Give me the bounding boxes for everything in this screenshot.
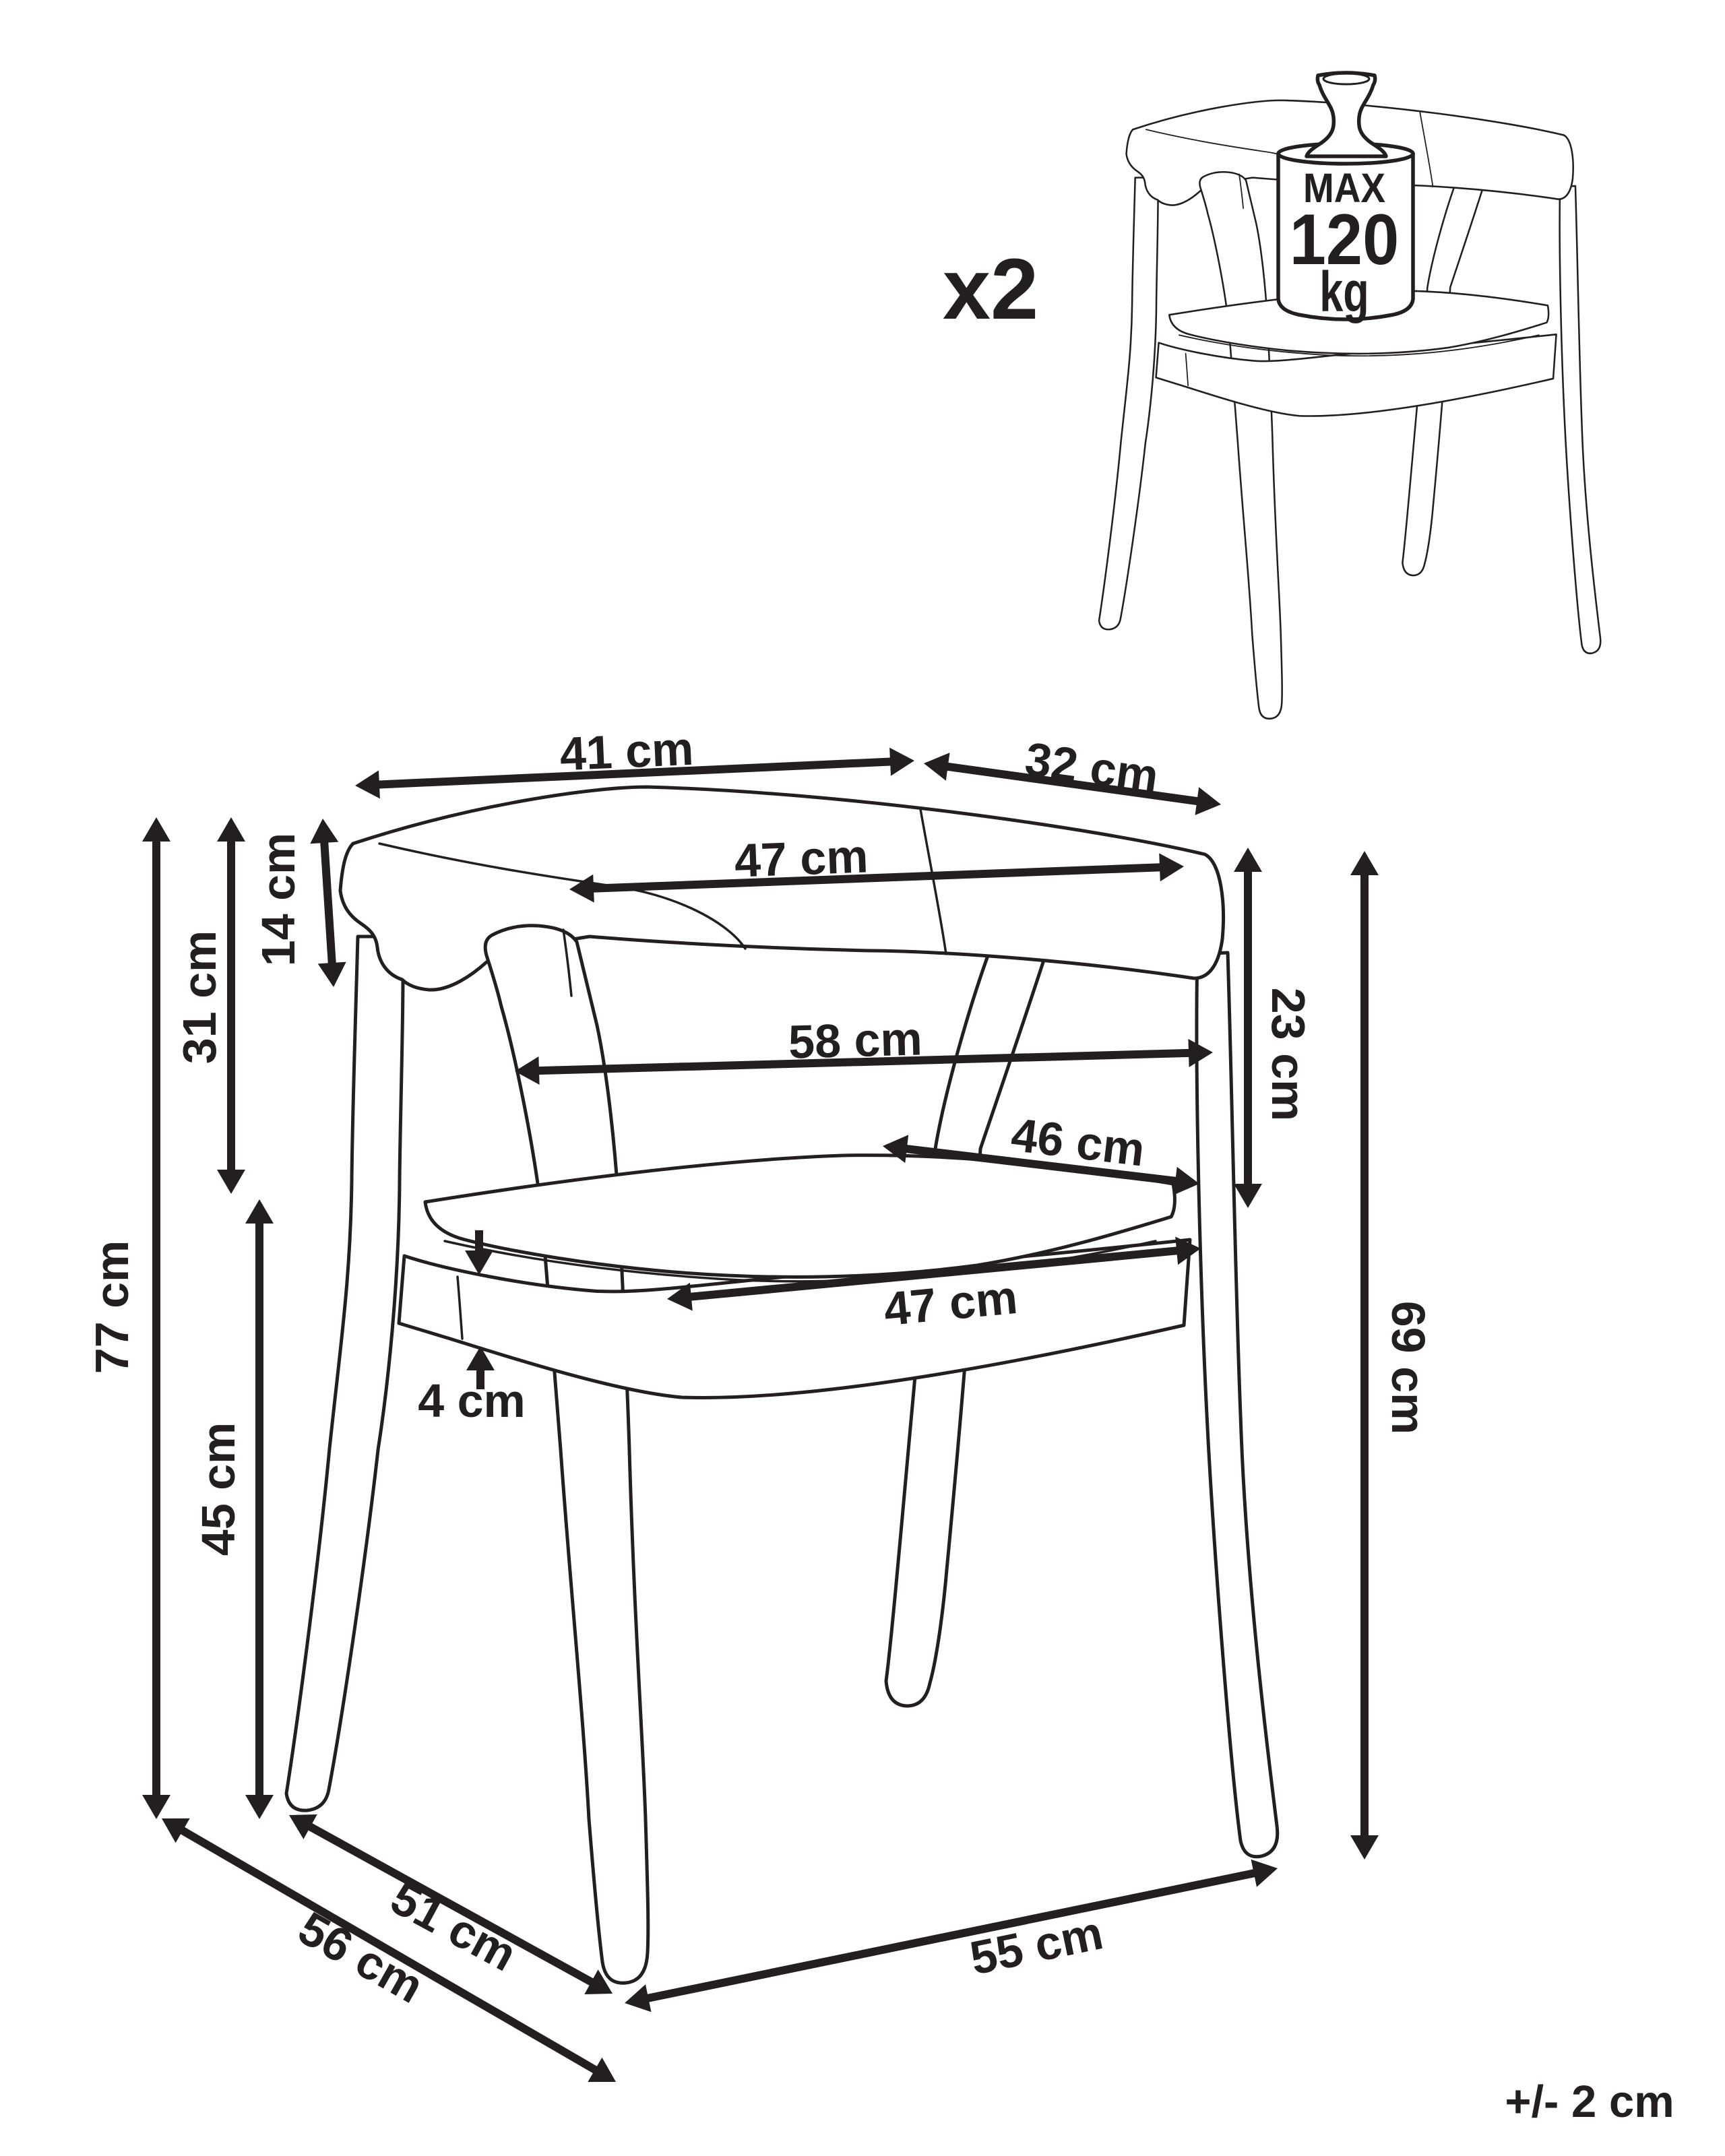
- svg-text:+/- 2 cm: +/- 2 cm: [1505, 2076, 1674, 2127]
- svg-text:58 cm: 58 cm: [788, 1012, 922, 1068]
- svg-text:23 cm: 23 cm: [1262, 988, 1315, 1121]
- svg-text:4 cm: 4 cm: [418, 1374, 526, 1427]
- svg-text:45 cm: 45 cm: [192, 1422, 245, 1556]
- svg-text:41 cm: 41 cm: [559, 722, 695, 781]
- svg-text:69 cm: 69 cm: [1382, 1301, 1435, 1434]
- svg-text:14 cm: 14 cm: [252, 833, 305, 966]
- svg-text:47 cm: 47 cm: [734, 829, 869, 887]
- svg-text:kg: kg: [1319, 260, 1369, 323]
- svg-text:31 cm: 31 cm: [173, 930, 226, 1064]
- svg-text:x2: x2: [943, 241, 1038, 338]
- svg-text:77 cm: 77 cm: [86, 1240, 138, 1374]
